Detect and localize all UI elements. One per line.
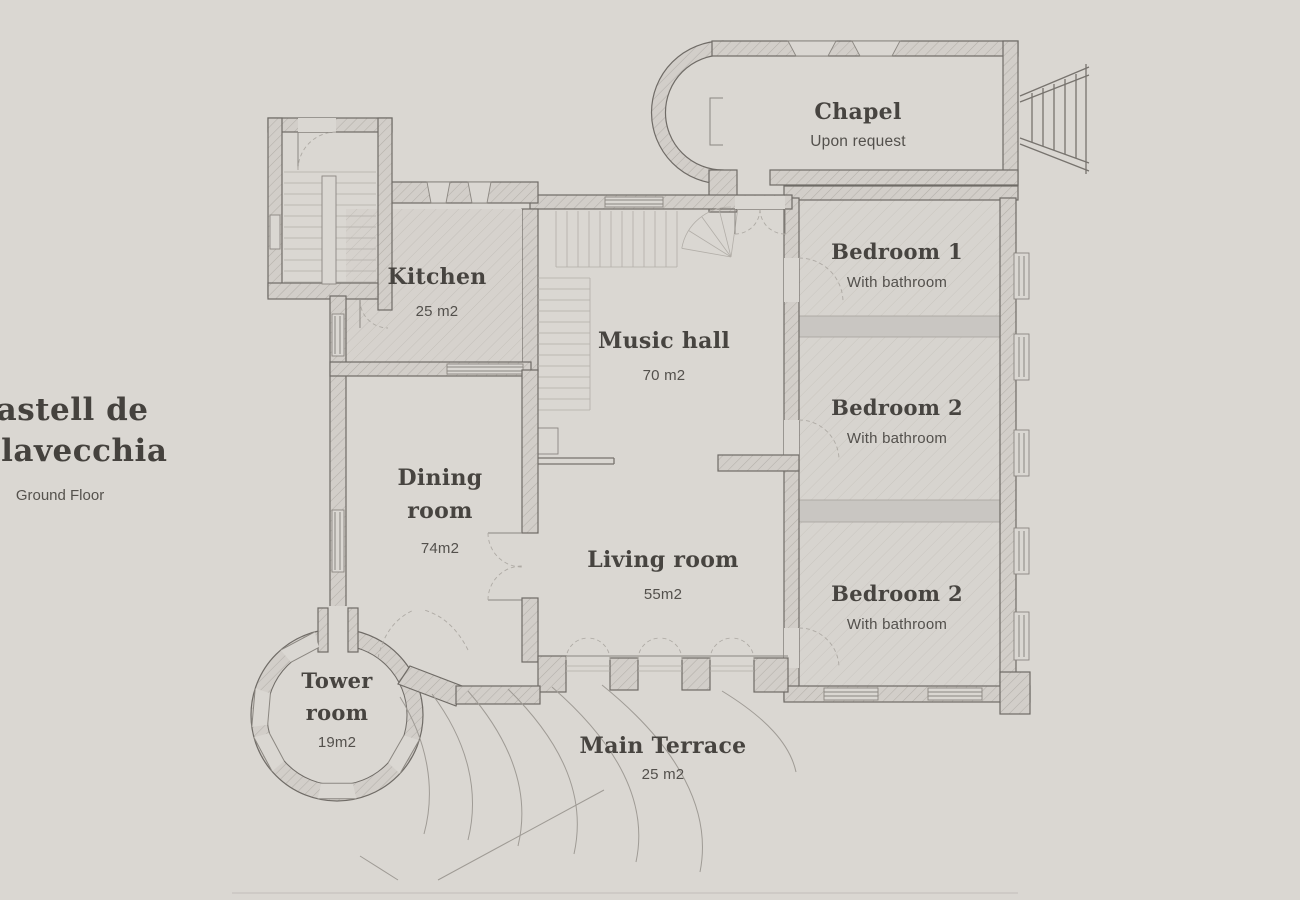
title-line-1: Castell de: [0, 390, 260, 431]
floor-subtitle: Ground Floor: [0, 487, 260, 504]
exterior-staircase: [1020, 64, 1089, 174]
room-label-tower-room: Tower room 19m2: [288, 665, 386, 751]
bathroom-corridor-band: [798, 500, 1002, 522]
title-line-2: Villavecchia: [0, 431, 260, 472]
fireplace: [536, 428, 558, 454]
room-detail: 25 m2: [387, 303, 486, 320]
spiral-stair: [682, 207, 738, 257]
room-label-kitchen: Kitchen 25 m2: [387, 261, 486, 320]
room-label-main-terrace: Main Terrace 25 m2: [580, 730, 747, 783]
room-name: Bedroom 1: [831, 236, 963, 268]
room-name: Kitchen: [387, 261, 486, 294]
room-name: Chapel: [810, 96, 905, 129]
room-name: Music hall: [598, 325, 730, 358]
room-label-bedroom-3: Bedroom 2 With bathroom: [831, 578, 963, 633]
room-name: Bedroom 2: [831, 392, 963, 424]
room-detail: 74m2: [384, 540, 496, 557]
room-name: Bedroom 2: [831, 578, 963, 610]
altar: [710, 98, 723, 145]
room-label-bedroom-1: Bedroom 1 With bathroom: [831, 236, 963, 291]
room-name: Living room: [587, 544, 739, 577]
room-name: Main Terrace: [580, 730, 747, 763]
page-background: Castell de Villavecchia Ground Floor Cha…: [0, 0, 1300, 900]
room-label-music-hall: Music hall 70 m2: [598, 325, 730, 384]
room-label-bedroom-2: Bedroom 2 With bathroom: [831, 392, 963, 447]
living-room-shape: [538, 638, 788, 692]
room-label-living-room: Living room 55m2: [587, 544, 739, 603]
room-detail: 25 m2: [580, 766, 747, 783]
room-label-dining-room: Dining room 74m2: [384, 462, 496, 557]
room-detail: Upon request: [810, 133, 905, 151]
room-detail: 70 m2: [598, 367, 730, 384]
room-detail: 19m2: [288, 734, 386, 751]
room-name: Tower room: [288, 665, 386, 728]
room-detail: With bathroom: [831, 616, 963, 633]
room-name: Dining room: [384, 462, 496, 528]
room-detail: 55m2: [587, 586, 739, 603]
room-label-chapel: Chapel Upon request: [810, 96, 905, 151]
room-detail: With bathroom: [831, 430, 963, 447]
plan-title: Castell de Villavecchia Ground Floor: [0, 390, 260, 504]
bathroom-corridor-band: [798, 316, 1002, 337]
room-detail: With bathroom: [831, 274, 963, 291]
